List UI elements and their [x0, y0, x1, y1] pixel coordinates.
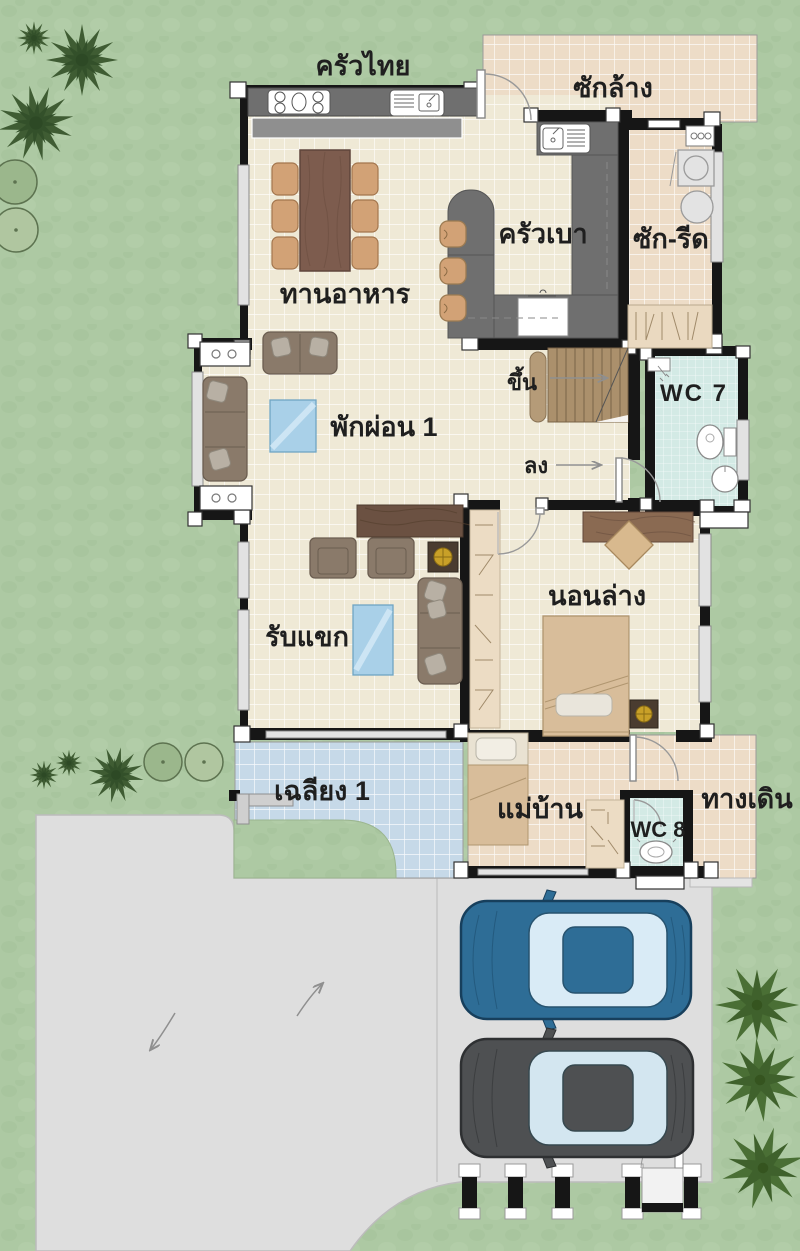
floor-plan: ครัวไทย ซักล้าง ครัวเบา ซัก-รีด ทานอาหาร…: [0, 0, 800, 1251]
car-blue: [461, 890, 691, 1030]
column: [704, 112, 720, 126]
column: [234, 726, 250, 742]
column: [454, 724, 468, 738]
walkway-step: [690, 878, 752, 887]
label-stairs-down: ลง: [524, 453, 548, 478]
pillow: [309, 337, 330, 358]
dining-chair: [352, 163, 378, 195]
laundry-basin-icon: [681, 191, 713, 223]
label-stairs-up: ขึ้น: [507, 366, 537, 395]
bed-double: [543, 616, 629, 736]
label-wc7: WC 7: [660, 380, 728, 407]
car-roof: [563, 927, 633, 993]
wall: [645, 356, 655, 506]
pillow: [426, 599, 447, 620]
column: [230, 82, 246, 98]
label-terrace: เฉลียง 1: [274, 776, 370, 806]
column: [736, 346, 750, 358]
column: [704, 862, 718, 878]
window: [238, 165, 249, 305]
pillow: [270, 336, 291, 357]
window: [238, 542, 249, 598]
column: [234, 510, 250, 524]
column: [640, 498, 652, 510]
label-bedroom-down: นอนล่าง: [548, 581, 646, 611]
sliding-window: [266, 731, 446, 738]
car-gray: [461, 1028, 693, 1168]
label-thai-kitchen: ครัวไทย: [316, 50, 411, 81]
pillow: [206, 380, 229, 403]
column: [454, 862, 468, 878]
shower-tray: [648, 358, 670, 371]
wc7-step: [700, 512, 748, 528]
column: [606, 108, 620, 122]
label-laundry: ซัก-รีด: [633, 224, 709, 254]
bar-stools: [440, 221, 466, 321]
armchair: [368, 538, 414, 578]
label-wash-yard: ซักล้าง: [573, 73, 653, 103]
column: [734, 500, 750, 512]
window: [699, 534, 711, 606]
wall: [542, 500, 710, 510]
window: [737, 420, 749, 480]
terrace-garden-notch: [234, 820, 396, 878]
label-pantry-kitchen: ครัวเบา: [498, 219, 587, 249]
dining-chair: [352, 200, 378, 232]
label-dining: ทานอาหาร: [280, 279, 411, 309]
kitchen-island: [252, 118, 462, 138]
laundry-closet: [628, 305, 712, 348]
wall-opening: [648, 120, 680, 128]
stove-icon: [268, 90, 330, 114]
column: [700, 724, 714, 738]
dining-chair: [352, 237, 378, 269]
wc8-step: [636, 876, 684, 889]
pillow: [556, 694, 612, 716]
dining-set: [272, 150, 378, 271]
laundry-shelf: [686, 126, 714, 146]
label-living: รับแขก: [265, 622, 349, 652]
tree-round: [0, 208, 38, 252]
label-wc8: WC 8: [631, 817, 686, 842]
window: [699, 626, 711, 702]
dining-chair: [272, 200, 298, 232]
planter-box: [200, 486, 252, 510]
thai-kitchen-counter: [248, 88, 478, 138]
dining-chair: [272, 237, 298, 269]
armchair: [310, 538, 356, 578]
wall: [625, 790, 691, 798]
bar-appliance: [518, 298, 568, 336]
wall: [628, 356, 640, 460]
label-walkway: ทางเดิน: [701, 784, 793, 814]
planter-box: [200, 342, 250, 366]
tree-round: [0, 160, 37, 204]
label-maid: แม่บ้าน: [497, 794, 584, 824]
pillow: [476, 738, 516, 760]
stair-treads: [548, 348, 628, 422]
window: [478, 869, 588, 875]
window: [192, 372, 203, 486]
label-lounge: พักผ่อน 1: [330, 412, 437, 442]
window: [238, 610, 249, 710]
car-roof: [563, 1065, 633, 1131]
toilet-tank: [724, 428, 736, 456]
column: [684, 862, 698, 878]
bedroom-closet: [470, 510, 500, 728]
column: [188, 512, 202, 526]
toilet-icon: [640, 841, 672, 863]
dining-chair: [272, 163, 298, 195]
floor-plan-canvas: ครัวไทย ซักล้าง ครัวเบา ซัก-รีด ทานอาหาร…: [0, 0, 800, 1251]
